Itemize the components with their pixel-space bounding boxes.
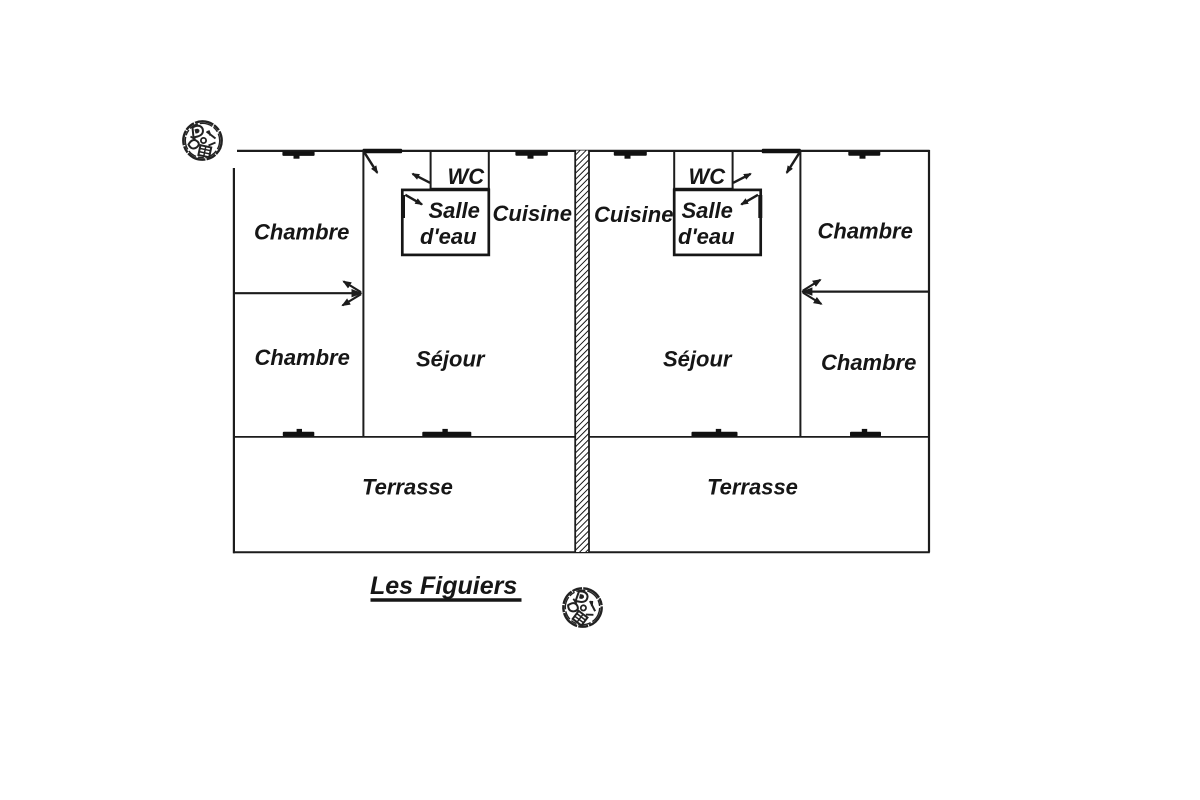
svg-text:Salle: Salle bbox=[682, 198, 733, 223]
svg-text:Séjour: Séjour bbox=[416, 347, 486, 372]
svg-text:WC: WC bbox=[448, 164, 486, 189]
svg-text:Chambre: Chambre bbox=[255, 345, 350, 370]
svg-text:Séjour: Séjour bbox=[663, 347, 733, 372]
svg-text:Salle: Salle bbox=[429, 198, 480, 223]
svg-text:d'eau: d'eau bbox=[420, 224, 477, 249]
svg-text:d'eau: d'eau bbox=[678, 224, 735, 249]
svg-text:Cuisine: Cuisine bbox=[594, 202, 673, 227]
svg-text:Cuisine: Cuisine bbox=[493, 201, 572, 226]
svg-text:Les Figuiers: Les Figuiers bbox=[370, 572, 517, 600]
svg-text:Chambre: Chambre bbox=[821, 350, 916, 375]
svg-text:Chambre: Chambre bbox=[254, 220, 349, 245]
svg-text:Chambre: Chambre bbox=[818, 219, 913, 244]
svg-text:WC: WC bbox=[689, 164, 727, 189]
svg-text:Terrasse: Terrasse bbox=[707, 475, 798, 500]
svg-text:Terrasse: Terrasse bbox=[362, 475, 453, 500]
